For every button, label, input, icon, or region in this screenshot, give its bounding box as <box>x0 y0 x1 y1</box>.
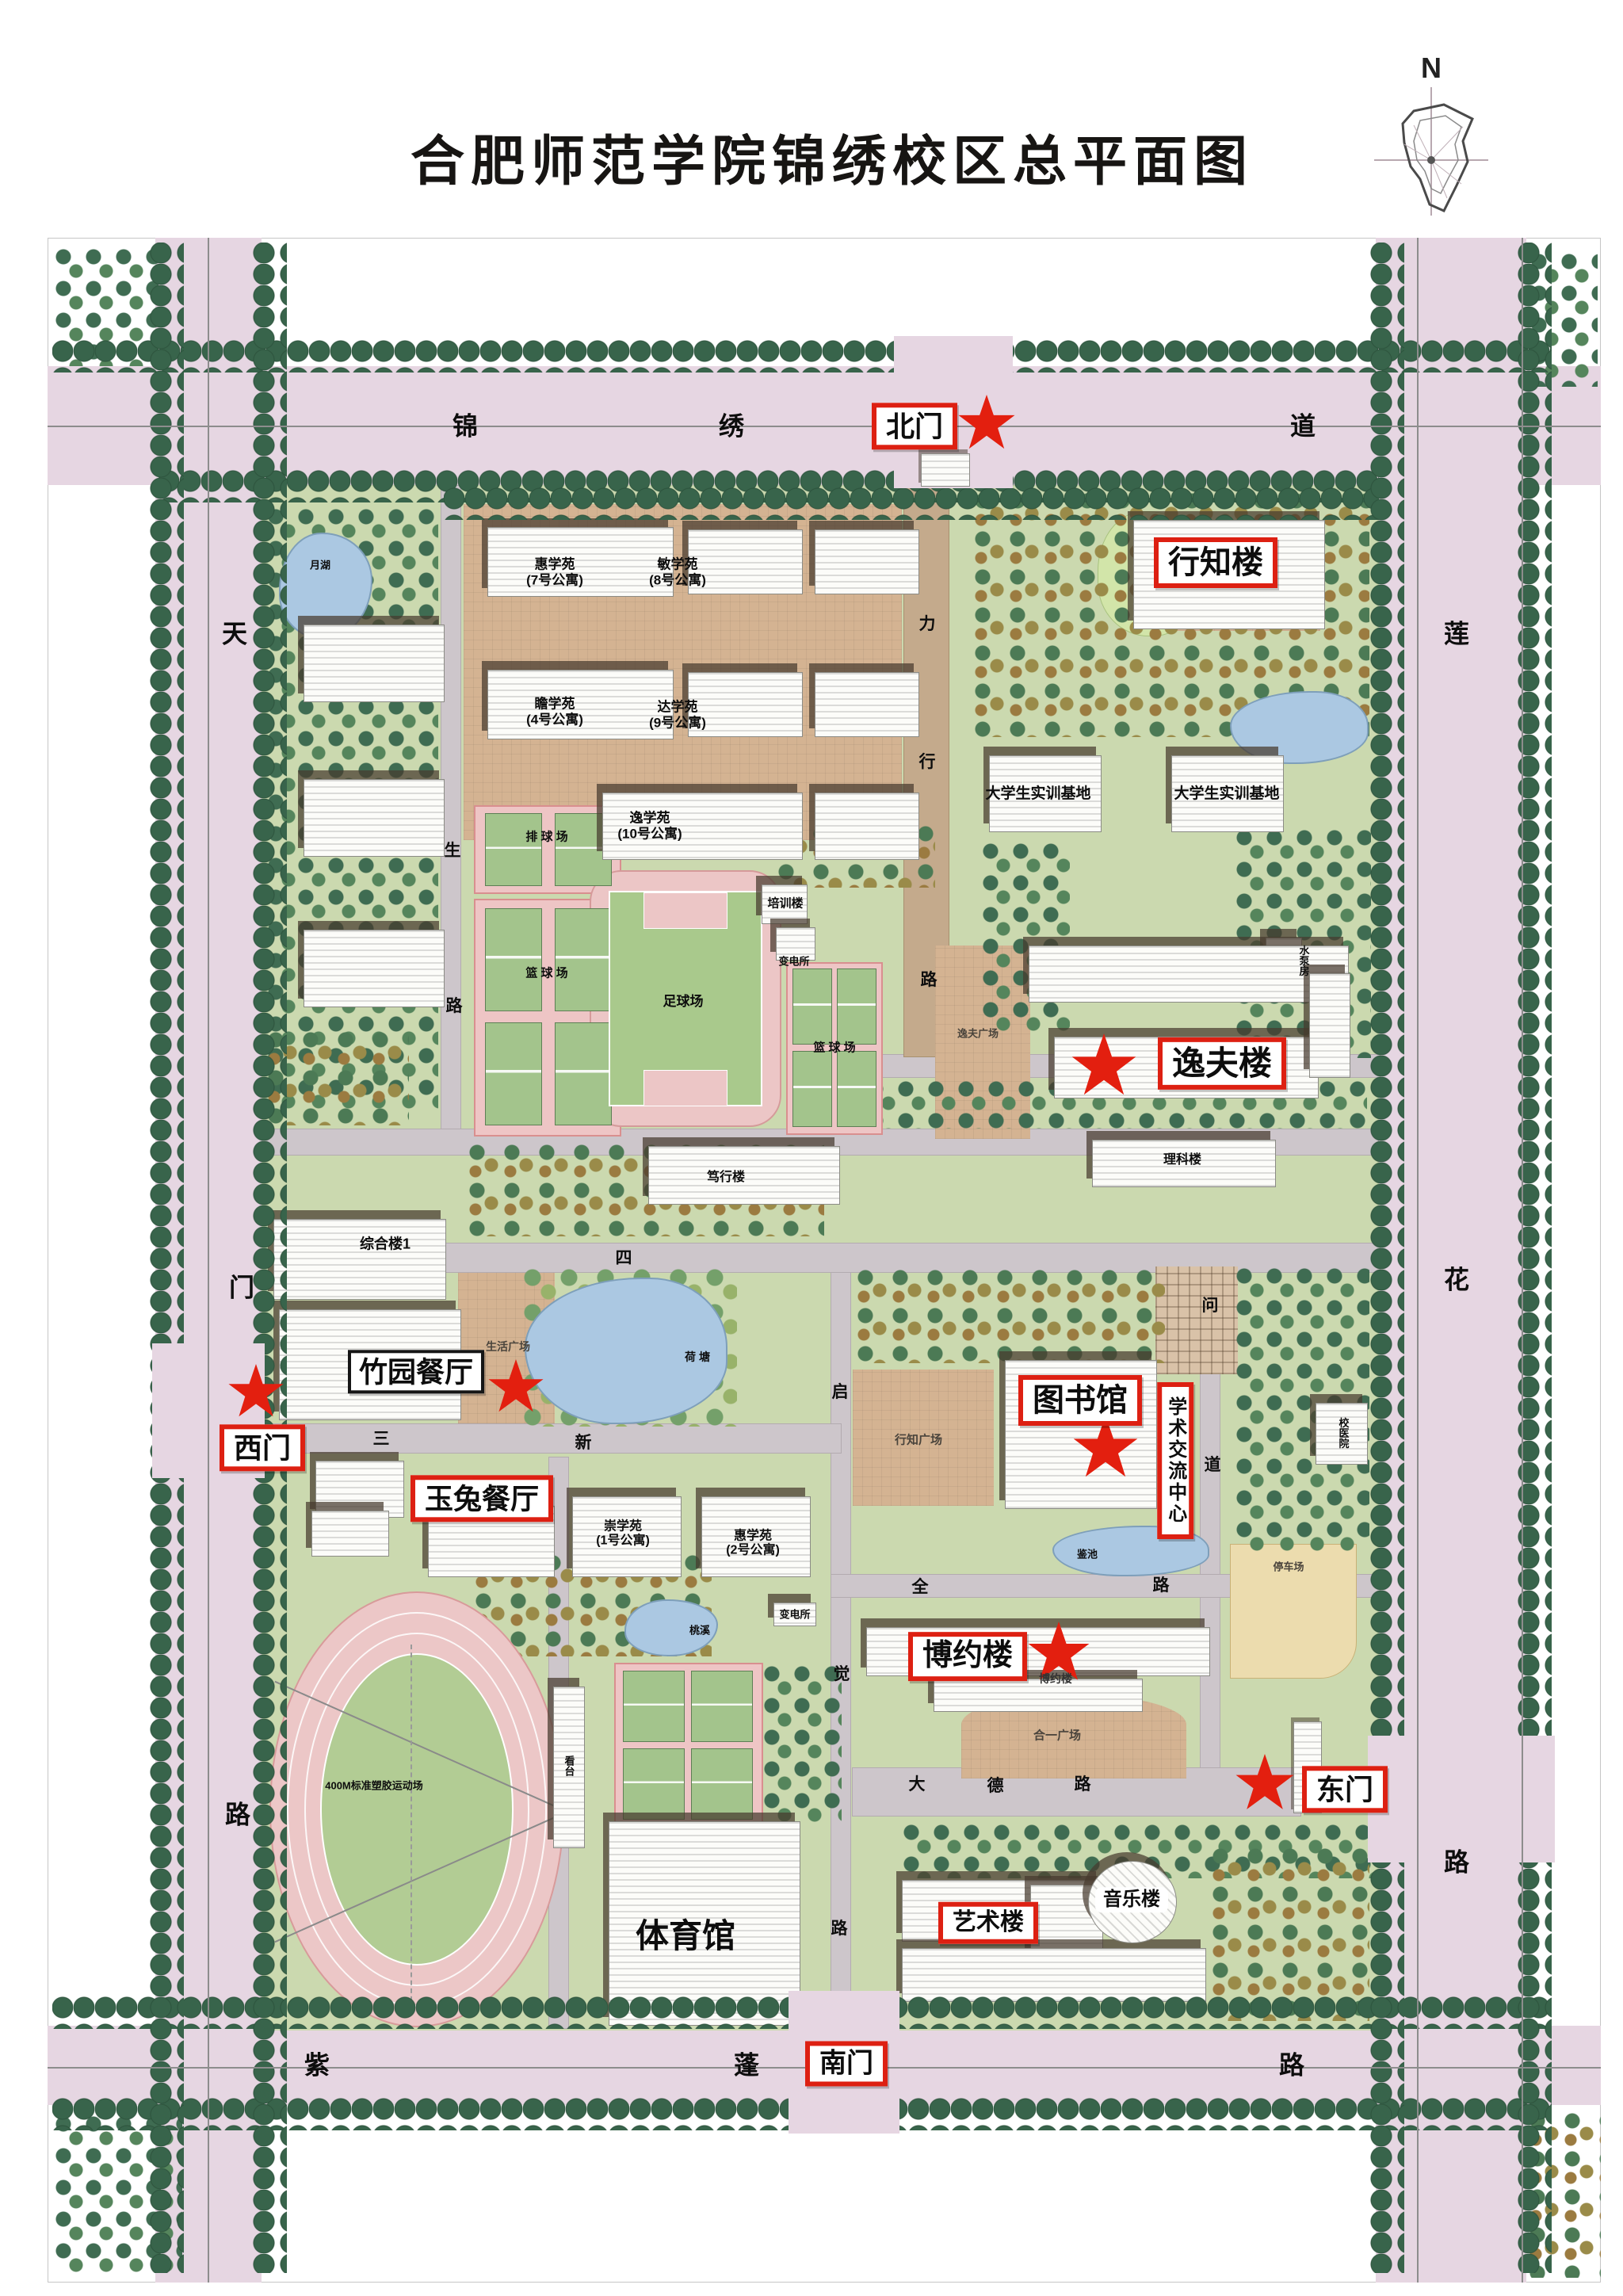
map-label: 惠学苑 (2号公寓) <box>726 1530 780 1559</box>
map-label: 逸夫广场 <box>957 1029 999 1041</box>
building <box>815 529 919 594</box>
goal-area <box>643 1070 727 1106</box>
plaza <box>1155 1266 1238 1374</box>
map-label-box: 行知楼 <box>1154 537 1277 588</box>
sports-court <box>485 813 542 886</box>
tree-grove <box>856 1268 1165 1363</box>
map-label: 崇学苑 (1号公寓) <box>596 1520 650 1549</box>
map-label: 路 <box>1153 1576 1170 1595</box>
map-label: 综合楼1 <box>360 1236 411 1253</box>
map-label: 四 <box>616 1249 632 1268</box>
road-centerline <box>1417 238 1419 2283</box>
tree-grove <box>983 842 1070 1032</box>
building <box>304 779 445 857</box>
map-label: 莲 <box>1444 620 1469 649</box>
map-label-box: 图书馆 <box>1018 1375 1142 1426</box>
map-label: 新 <box>575 1434 592 1453</box>
map-label: 逸学苑 (10号公寓) <box>617 810 682 841</box>
tree-row <box>1369 243 1404 2273</box>
map-label: 路 <box>831 1920 848 1939</box>
map-label-box: 东门 <box>1302 1766 1388 1813</box>
track-infield <box>320 1653 514 1966</box>
map-label: 足球场 <box>663 994 704 1010</box>
internal-road <box>262 1423 842 1454</box>
map-label: 大学生实训基地 <box>1174 785 1279 803</box>
map-label: 培训楼 <box>767 896 803 910</box>
map-label: 排 球 场 <box>525 830 567 843</box>
map-label: 合一广场 <box>1033 1729 1081 1742</box>
page: 合肥师范学院锦绣校区总平面图 N 北门行知楼逸夫楼西门图书馆学术交流中心博约楼东… <box>0 0 1623 2296</box>
map-label: 400M标准塑胶运动场 <box>325 1781 423 1793</box>
building <box>815 793 919 860</box>
map-label: 音乐楼 <box>1095 1887 1168 1912</box>
map-label: 理科楼 <box>1163 1153 1201 1167</box>
map-label: 道 <box>1205 1456 1221 1475</box>
goal-area <box>643 892 727 929</box>
sports-court <box>485 1022 542 1125</box>
map-label: 鉴池 <box>1077 1549 1098 1561</box>
building <box>273 1219 446 1300</box>
sports-court <box>691 1671 753 1742</box>
map-label: 笃行楼 <box>707 1171 745 1185</box>
map-label: 大 <box>909 1775 926 1794</box>
map-label: 校医院 <box>1337 1418 1349 1449</box>
map-label: 路 <box>921 971 938 990</box>
map-label-box: 西门 <box>220 1424 305 1471</box>
map-label-box: 南门 <box>805 2041 888 2086</box>
tree-grove <box>1236 828 1371 1058</box>
map-label-box: 艺术楼 <box>938 1902 1038 1944</box>
building <box>902 1948 1206 2002</box>
track-centerline <box>411 1645 412 2009</box>
gate-structure <box>921 453 970 487</box>
map-label: 生 <box>445 842 461 861</box>
road-centerline <box>48 426 1601 427</box>
map-label: 篮 球 场 <box>813 1041 855 1054</box>
building <box>311 1511 389 1557</box>
map-label: 停车场 <box>1273 1562 1304 1574</box>
map-label: 路 <box>1279 2051 1304 2080</box>
map-label-box: 北门 <box>872 403 957 449</box>
map-label: 行知广场 <box>895 1433 942 1446</box>
map-label: 博约楼 <box>1039 1672 1072 1685</box>
map-label: 路 <box>1075 1775 1091 1794</box>
map-label: 启 <box>832 1383 849 1402</box>
sports-court <box>691 1748 753 1820</box>
map-label: 门 <box>229 1274 254 1303</box>
map-label-box: 学术交流中心 <box>1157 1382 1193 1539</box>
pond <box>1230 691 1369 764</box>
map-label: 瞻学苑 (4号公寓) <box>526 696 583 727</box>
sports-court <box>485 908 542 1011</box>
map-label: 觉 <box>834 1665 850 1684</box>
building <box>815 672 919 737</box>
map-label-box: 博约楼 <box>908 1632 1027 1681</box>
map-label: 蓬 <box>734 2051 759 2080</box>
map-label: 路 <box>1444 1848 1469 1878</box>
map-label: 达学苑 (9号公寓) <box>649 699 706 730</box>
tree-grove <box>266 1030 409 1125</box>
map-label: 路 <box>225 1801 250 1830</box>
map-label: 变电所 <box>779 1610 810 1622</box>
map-label: 力 <box>919 615 936 634</box>
sports-court <box>837 968 876 1045</box>
building <box>304 930 445 1007</box>
map-label: 大学生实训基地 <box>985 785 1090 803</box>
map-label: 绣 <box>719 412 744 441</box>
sports-court <box>792 968 832 1045</box>
map-label-box: 玉兔餐厅 <box>411 1475 553 1522</box>
map-label: 全 <box>912 1578 929 1597</box>
building <box>1309 973 1350 1078</box>
sports-court <box>792 1051 832 1127</box>
map-label: 变电所 <box>778 957 809 968</box>
map-label: 路 <box>446 997 463 1016</box>
gate-opening <box>1368 1736 1555 1862</box>
map-label: 问 <box>1202 1297 1219 1316</box>
tree-row <box>444 487 1379 520</box>
sports-court <box>837 1051 876 1127</box>
map-label: 三 <box>373 1430 390 1449</box>
map-label: 月湖 <box>310 560 330 572</box>
map-label: 篮 球 场 <box>525 966 567 980</box>
tree-grove <box>1211 1847 1369 2021</box>
tree-row <box>149 243 184 2273</box>
tree-row <box>252 243 287 2273</box>
sports-court <box>555 1022 612 1125</box>
building <box>315 1461 404 1518</box>
map-label: 天 <box>222 620 247 649</box>
map-label-box: 竹园餐厅 <box>348 1350 484 1393</box>
map-label: 荷 塘 <box>685 1350 710 1363</box>
map-label-box: 逸夫楼 <box>1158 1037 1286 1090</box>
sports-court <box>623 1671 685 1742</box>
sports-court <box>555 908 612 1011</box>
internal-road <box>831 1263 851 2034</box>
map-label: 德 <box>987 1777 1004 1796</box>
map-label: 锦 <box>453 412 478 441</box>
map-label: 惠学苑 (7号公寓) <box>526 556 583 587</box>
building <box>304 625 445 702</box>
map-label: 体育馆 <box>636 1917 735 1955</box>
north-compass-icon: N <box>1368 49 1495 223</box>
map-label: 行 <box>919 753 936 772</box>
map-label: 道 <box>1290 412 1316 441</box>
compass-n-label: N <box>1421 52 1442 84</box>
building <box>934 1679 1143 1712</box>
road-centerline <box>208 238 209 2283</box>
map-label: 花 <box>1444 1266 1469 1295</box>
map-label: 桃溪 <box>689 1626 710 1637</box>
map-label: 看台 <box>563 1755 575 1776</box>
map-label: 水泵房 <box>1297 946 1309 976</box>
map-label: 紫 <box>304 2051 330 2080</box>
campus-map: 北门行知楼逸夫楼西门图书馆学术交流中心博约楼东门艺术楼南门玉兔餐厅竹园餐厅音乐楼… <box>0 0 1623 2296</box>
map-label: 生活广场 <box>486 1340 530 1353</box>
road-centerline <box>1522 238 1523 2283</box>
sports-court <box>623 1748 685 1820</box>
map-label: 敏学苑 (8号公寓) <box>649 556 706 587</box>
